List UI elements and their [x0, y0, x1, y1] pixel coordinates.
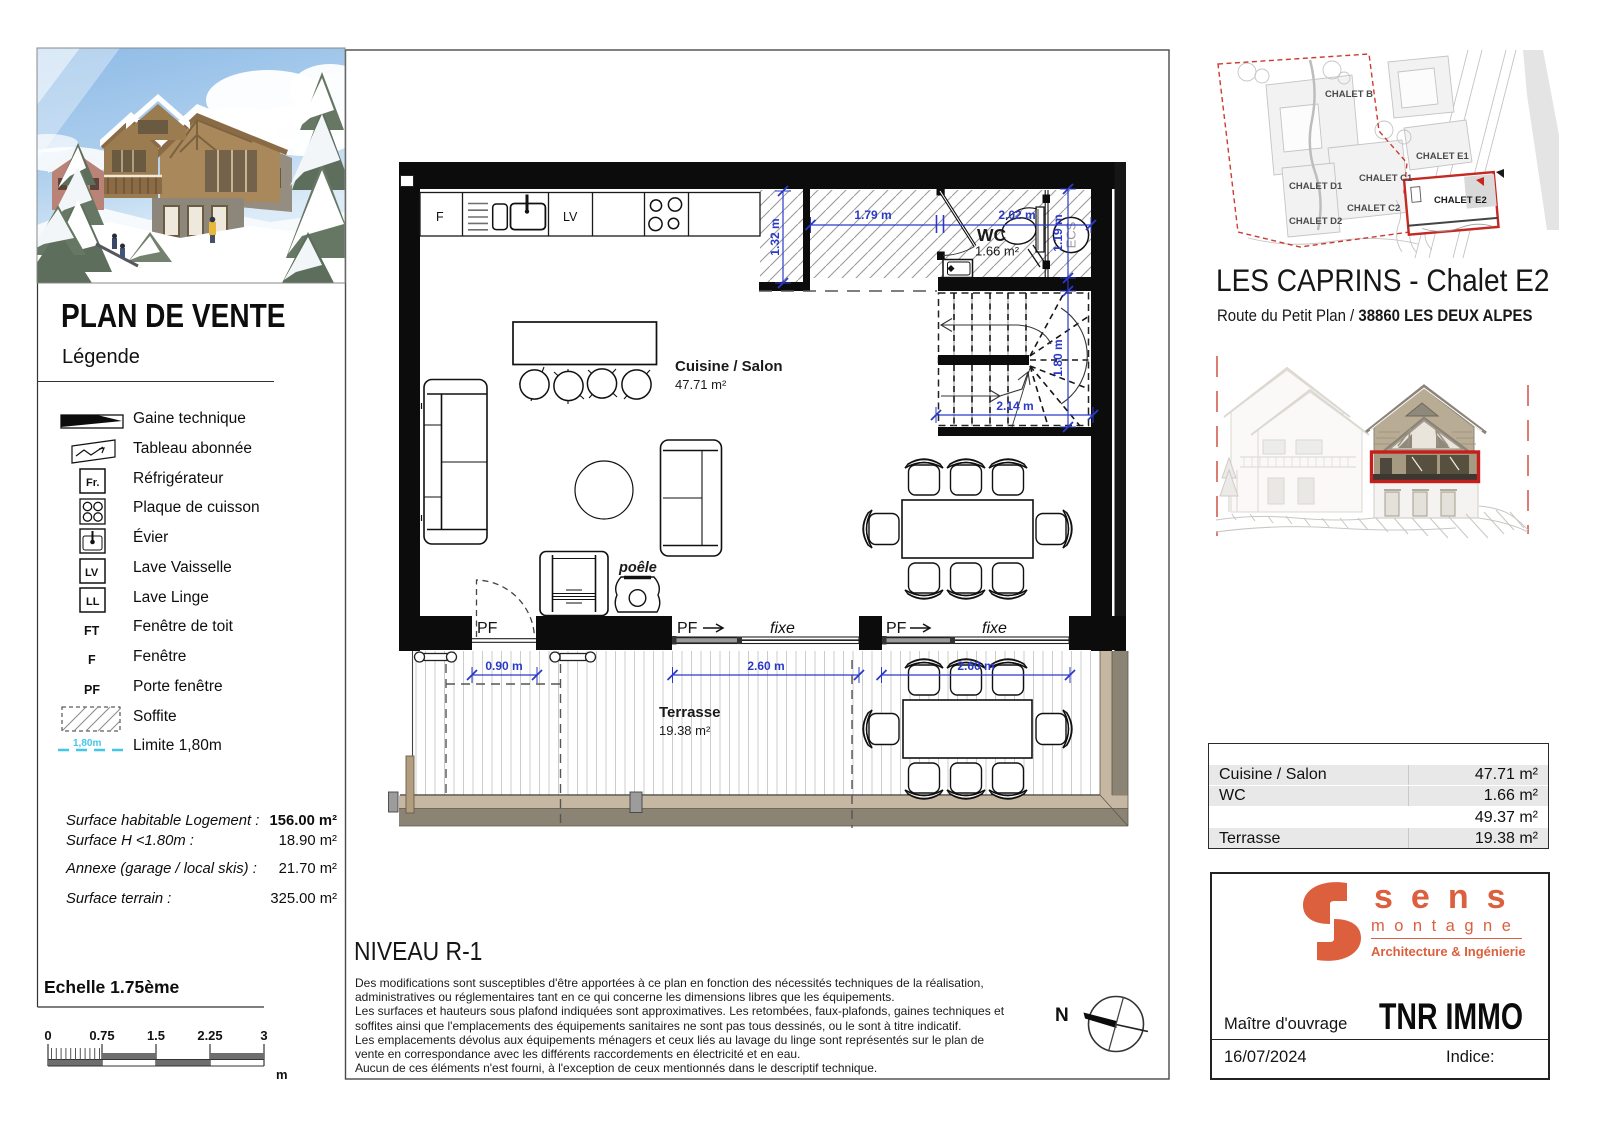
- svg-text:WC: WC: [977, 225, 1007, 245]
- svg-text:1.79 m: 1.79 m: [854, 208, 891, 222]
- svg-text:LV: LV: [85, 567, 99, 579]
- svg-text:fixe: fixe: [770, 620, 795, 637]
- svg-text:FT: FT: [84, 624, 100, 638]
- svg-text:1.66 m²: 1.66 m²: [975, 244, 1020, 259]
- svg-text:2.60 m: 2.60 m: [747, 659, 784, 673]
- svg-text:0.75: 0.75: [89, 1028, 114, 1043]
- svg-text:CHALET C2: CHALET C2: [1347, 203, 1400, 214]
- svg-text:1,80m: 1,80m: [73, 738, 101, 749]
- svg-text:CHALET C1: CHALET C1: [1359, 173, 1413, 184]
- svg-text:Fr.: Fr.: [86, 477, 99, 489]
- svg-text:fixe: fixe: [982, 620, 1007, 637]
- svg-text:Cuisine / Salon: Cuisine / Salon: [675, 358, 783, 375]
- svg-text:3: 3: [260, 1028, 267, 1043]
- svg-text:CHALET E1: CHALET E1: [1416, 151, 1470, 162]
- svg-text:F: F: [88, 653, 96, 667]
- svg-text:m: m: [276, 1067, 288, 1082]
- svg-text:PF: PF: [84, 683, 100, 697]
- svg-text:2.02 m: 2.02 m: [998, 208, 1035, 222]
- svg-text:CHALET B: CHALET B: [1325, 89, 1373, 100]
- svg-text:CHALET D1: CHALET D1: [1289, 181, 1343, 192]
- svg-text:PF: PF: [477, 620, 498, 637]
- svg-text:CHALET E2: CHALET E2: [1434, 195, 1487, 206]
- svg-text:2.25: 2.25: [197, 1028, 222, 1043]
- svg-text:LV: LV: [563, 210, 578, 224]
- svg-text:LL: LL: [86, 596, 100, 608]
- svg-text:F: F: [436, 210, 444, 224]
- svg-text:PF: PF: [677, 620, 698, 637]
- svg-text:N: N: [1055, 1005, 1069, 1026]
- svg-text:47.71 m²: 47.71 m²: [675, 377, 727, 392]
- svg-text:2.60 m: 2.60 m: [957, 659, 994, 673]
- svg-text:0: 0: [44, 1028, 51, 1043]
- svg-text:Terrasse: Terrasse: [659, 704, 720, 721]
- svg-text:CHALET D2: CHALET D2: [1289, 216, 1342, 227]
- svg-text:2.14 m: 2.14 m: [996, 399, 1033, 413]
- svg-text:0.90 m: 0.90 m: [485, 659, 522, 673]
- svg-text:PF: PF: [886, 620, 907, 637]
- svg-text:1.5: 1.5: [147, 1028, 165, 1043]
- svg-text:1.32 m: 1.32 m: [768, 218, 782, 255]
- svg-text:1.80 m: 1.80 m: [1051, 339, 1065, 376]
- svg-text:19.38 m²: 19.38 m²: [659, 723, 711, 738]
- svg-text:poêle: poêle: [618, 560, 657, 576]
- svg-text:1.19 m: 1.19 m: [1051, 214, 1065, 251]
